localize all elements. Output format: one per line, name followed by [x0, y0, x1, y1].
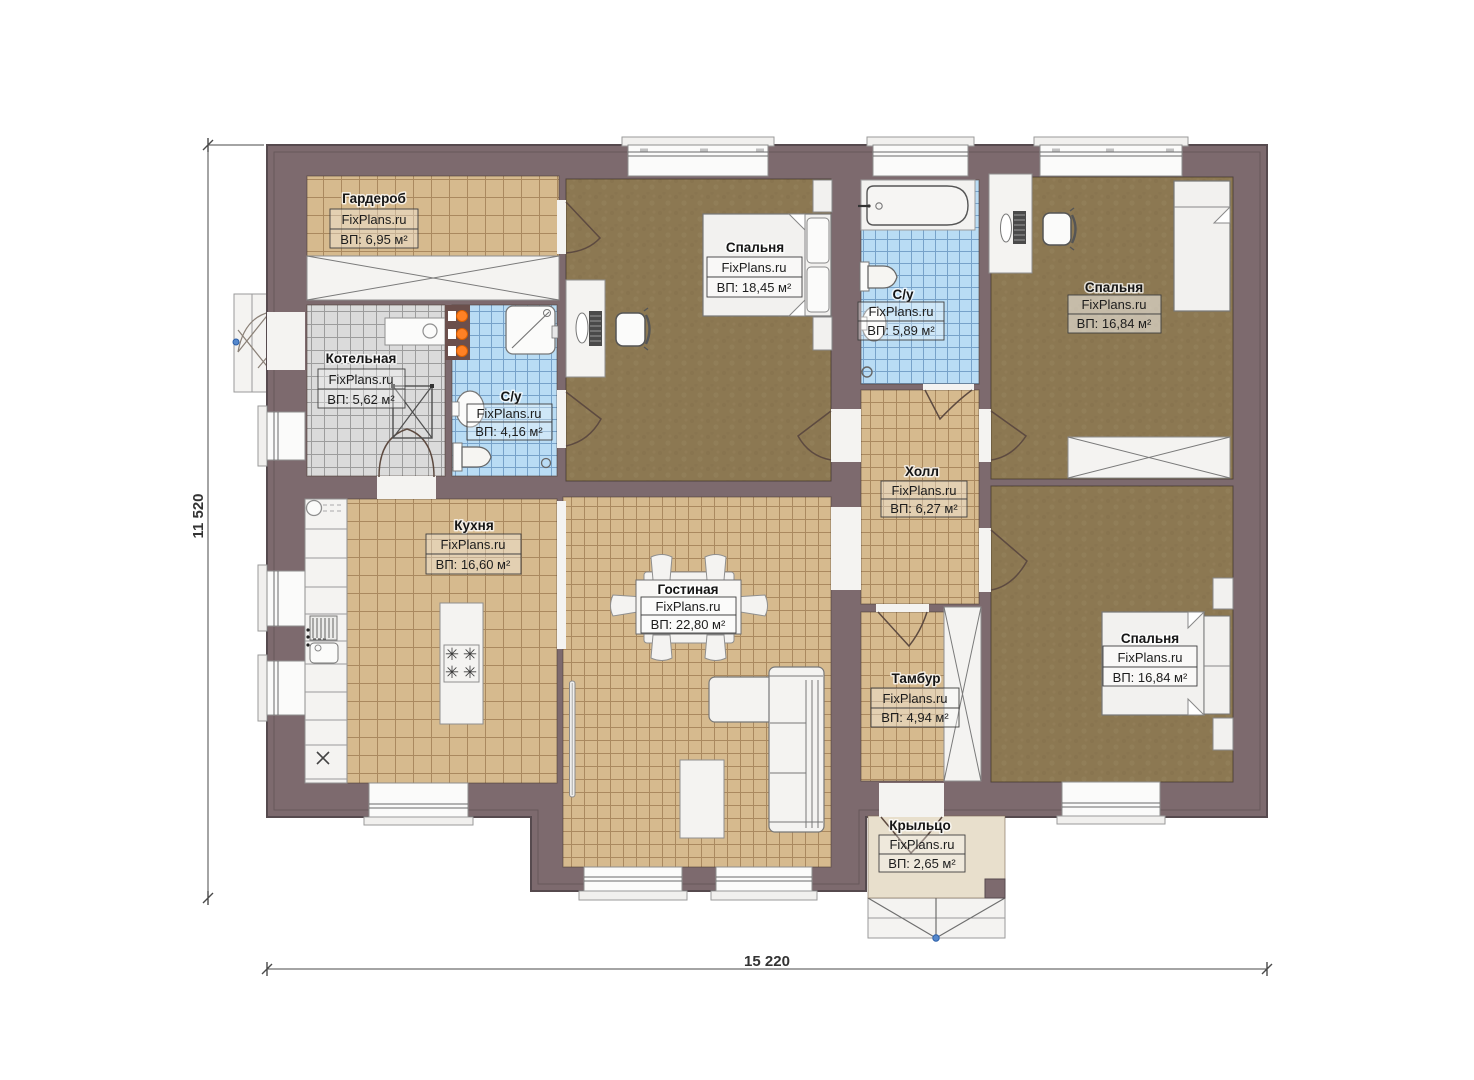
svg-text:Спальня: Спальня — [726, 240, 784, 255]
svg-text:Гардероб: Гардероб — [342, 191, 406, 206]
svg-text:FixPlans.ru: FixPlans.ru — [891, 483, 956, 498]
svg-text:ВП: 4,16 м²: ВП: 4,16 м² — [475, 424, 543, 439]
svg-text:ВП: 16,60 м²: ВП: 16,60 м² — [436, 557, 511, 572]
svg-text:ВП: 16,84 м²: ВП: 16,84 м² — [1077, 316, 1152, 331]
svg-text:FixPlans.ru: FixPlans.ru — [868, 304, 933, 319]
svg-text:15 220: 15 220 — [744, 953, 790, 970]
svg-text:✳: ✳ — [445, 663, 459, 682]
svg-text:ВП: 2,65 м²: ВП: 2,65 м² — [888, 856, 956, 871]
svg-text:Котельная: Котельная — [326, 351, 397, 366]
svg-text:FixPlans.ru: FixPlans.ru — [655, 599, 720, 614]
svg-text:FixPlans.ru: FixPlans.ru — [889, 837, 954, 852]
svg-text:ВП: 18,45 м²: ВП: 18,45 м² — [717, 280, 792, 295]
svg-text:✳: ✳ — [463, 645, 477, 664]
svg-text:FixPlans.ru: FixPlans.ru — [1081, 297, 1146, 312]
svg-text:✳: ✳ — [445, 645, 459, 664]
svg-text:ВП: 16,84 м²: ВП: 16,84 м² — [1113, 670, 1188, 685]
svg-text:FixPlans.ru: FixPlans.ru — [328, 372, 393, 387]
svg-text:Тамбур: Тамбур — [892, 671, 941, 686]
svg-text:Крыльцо: Крыльцо — [889, 818, 950, 833]
svg-text:ВП: 6,27 м²: ВП: 6,27 м² — [890, 501, 958, 516]
svg-text:С/у: С/у — [892, 287, 914, 302]
svg-text:FixPlans.ru: FixPlans.ru — [476, 406, 541, 421]
svg-text:Холл: Холл — [905, 464, 939, 479]
svg-text:Спальня: Спальня — [1085, 280, 1143, 295]
svg-text:ВП: 6,95 м²: ВП: 6,95 м² — [340, 232, 408, 247]
svg-text:✳: ✳ — [463, 663, 477, 682]
svg-text:Кухня: Кухня — [454, 518, 493, 533]
svg-text:ВП: 22,80 м²: ВП: 22,80 м² — [651, 617, 726, 632]
svg-text:11 520: 11 520 — [190, 493, 207, 538]
svg-text:ВП: 5,89 м²: ВП: 5,89 м² — [867, 323, 935, 338]
svg-text:ВП: 5,62 м²: ВП: 5,62 м² — [327, 392, 395, 407]
svg-text:С/у: С/у — [500, 389, 522, 404]
svg-text:FixPlans.ru: FixPlans.ru — [721, 260, 786, 275]
svg-text:FixPlans.ru: FixPlans.ru — [341, 212, 406, 227]
svg-text:Спальня: Спальня — [1121, 631, 1179, 646]
svg-text:FixPlans.ru: FixPlans.ru — [882, 691, 947, 706]
svg-text:ВП: 4,94 м²: ВП: 4,94 м² — [881, 710, 949, 725]
svg-text:FixPlans.ru: FixPlans.ru — [1117, 650, 1182, 665]
svg-text:FixPlans.ru: FixPlans.ru — [440, 537, 505, 552]
svg-text:Гостиная: Гостиная — [657, 582, 718, 597]
